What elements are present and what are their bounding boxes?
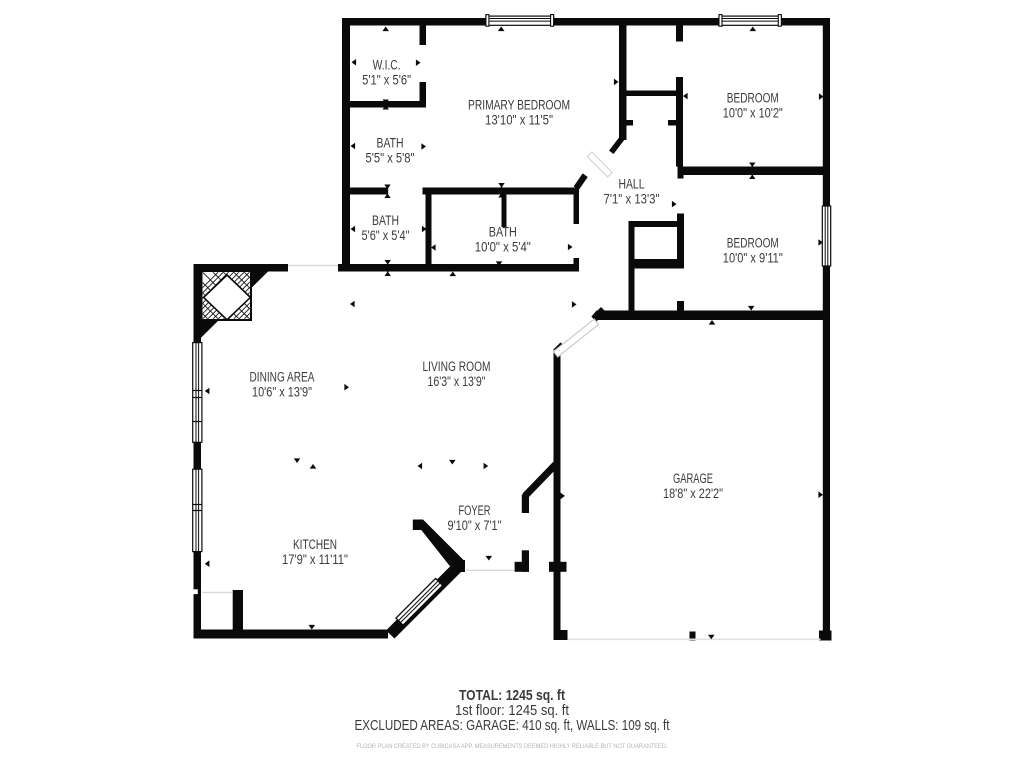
svg-text:13'10" x 11'5": 13'10" x 11'5"	[485, 113, 553, 128]
svg-text:18'8" x 22'2": 18'8" x 22'2"	[663, 486, 723, 501]
svg-text:5'5" x 5'8": 5'5" x 5'8"	[366, 151, 415, 166]
svg-text:FOYER: FOYER	[459, 503, 491, 518]
svg-text:16'3" x 13'9": 16'3" x 13'9"	[428, 374, 486, 389]
svg-text:10'6" x 13'9": 10'6" x 13'9"	[252, 385, 312, 400]
svg-text:DINING AREA: DINING AREA	[250, 370, 315, 385]
svg-text:EXCLUDED AREAS: GARAGE: 410 sq: EXCLUDED AREAS: GARAGE: 410 sq. ft, WALL…	[355, 717, 671, 734]
svg-text:BEDROOM: BEDROOM	[727, 91, 779, 106]
svg-text:LIVING ROOM: LIVING ROOM	[423, 359, 491, 374]
svg-text:W.I.C.: W.I.C.	[373, 58, 401, 73]
svg-text:5'6" x 5'4": 5'6" x 5'4"	[362, 228, 410, 243]
svg-text:HALL: HALL	[619, 177, 645, 192]
svg-text:7'1" x 13'3": 7'1" x 13'3"	[604, 192, 660, 207]
svg-text:10'0" x 9'11": 10'0" x 9'11"	[723, 251, 783, 266]
svg-text:5'1" x 5'6": 5'1" x 5'6"	[362, 73, 411, 88]
svg-text:BATH: BATH	[377, 136, 404, 151]
svg-text:BATH: BATH	[489, 225, 517, 240]
svg-text:9'10" x 7'1": 9'10" x 7'1"	[448, 518, 502, 533]
svg-text:10'0" x 5'4": 10'0" x 5'4"	[475, 240, 531, 255]
svg-text:17'9" x 11'11": 17'9" x 11'11"	[282, 552, 348, 567]
svg-text:KITCHEN: KITCHEN	[293, 537, 337, 552]
svg-text:PRIMARY BEDROOM: PRIMARY BEDROOM	[468, 98, 570, 113]
svg-text:BATH: BATH	[372, 213, 399, 228]
svg-text:10'0" x 10'2": 10'0" x 10'2"	[723, 106, 783, 121]
svg-text:FLOOR PLAN CREATED BY CUBICASA: FLOOR PLAN CREATED BY CUBICASA APP. MEAS…	[357, 743, 668, 750]
svg-text:GARAGE: GARAGE	[673, 471, 713, 486]
svg-text:BEDROOM: BEDROOM	[727, 236, 779, 251]
